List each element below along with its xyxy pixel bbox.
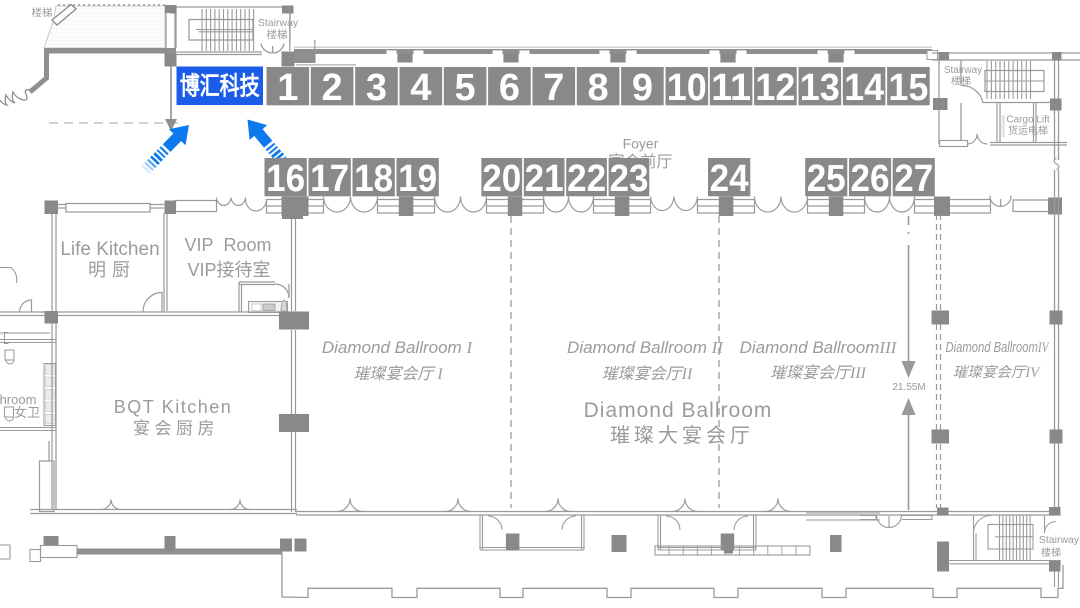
svg-text:Stairway: Stairway [1039,534,1080,546]
svg-text:5: 5 [455,67,476,109]
svg-text:8: 8 [588,67,609,109]
svg-text:璀璨宴会厅II: 璀璨宴会厅II [602,365,693,383]
svg-text:15: 15 [888,67,928,109]
svg-text:璀璨宴会厅 I: 璀璨宴会厅 I [353,365,443,383]
svg-text:6: 6 [499,67,520,109]
svg-text:博汇科技: 博汇科技 [180,73,260,101]
svg-text:18: 18 [354,158,393,200]
svg-text:货运电梯: 货运电梯 [1008,124,1048,137]
svg-text:Diamond BallroomIII: Diamond BallroomIII [740,338,898,357]
svg-text:9: 9 [632,67,653,109]
svg-text:明厨: 明厨 [88,260,136,280]
svg-text:12: 12 [755,67,795,109]
svg-text:14: 14 [844,67,884,109]
svg-text:7: 7 [543,67,564,109]
svg-text:VIP Room: VIP Room [184,235,271,255]
svg-text:24: 24 [710,158,749,200]
svg-text:17: 17 [310,158,349,200]
svg-text:Diamond Ballroom I: Diamond Ballroom I [322,338,474,357]
svg-text:宴会厨房: 宴会厨房 [133,419,219,438]
svg-text:2: 2 [322,67,343,109]
svg-text:Cargo Lift: Cargo Lift [1006,115,1050,126]
svg-text:Foyer: Foyer [623,136,659,152]
svg-text:21: 21 [525,158,564,200]
svg-text:璀璨宴会厅III: 璀璨宴会厅III [770,364,867,382]
svg-text:1: 1 [277,67,298,109]
svg-text:璀璨宴会厅IV: 璀璨宴会厅IV [953,364,1041,381]
svg-text:Life Kitchen: Life Kitchen [60,239,159,260]
svg-text:楼梯: 楼梯 [32,6,53,19]
svg-text:楼梯: 楼梯 [1041,546,1061,559]
svg-text:20: 20 [482,158,521,200]
svg-text:楼梯: 楼梯 [267,28,288,41]
svg-text:Diamond Ballroom: Diamond Ballroom [584,399,773,422]
svg-text:Diamond Ballroom II: Diamond Ballroom II [567,338,724,357]
svg-text:BQT Kitchen: BQT Kitchen [114,397,233,417]
svg-text:27: 27 [894,158,933,200]
svg-text:女卫: 女卫 [14,405,40,420]
svg-text:楼梯: 楼梯 [951,75,971,88]
svg-text:25: 25 [807,158,846,200]
svg-text:10: 10 [667,67,707,109]
svg-text:23: 23 [610,158,649,200]
svg-text:26: 26 [851,158,890,200]
svg-text:璀璨大宴会厅: 璀璨大宴会厅 [610,424,754,447]
svg-text:13: 13 [800,67,840,109]
svg-text:Stairway: Stairway [258,17,299,29]
svg-text:Stairway: Stairway [944,65,982,76]
svg-text:16: 16 [266,158,305,200]
svg-text:3: 3 [366,67,387,109]
svg-text:VIP接待室: VIP接待室 [187,260,270,280]
svg-text:19: 19 [398,158,437,200]
svg-text:21.55M: 21.55M [892,382,925,393]
svg-text:22: 22 [567,158,606,200]
svg-text:Diamond BallroomIV: Diamond BallroomIV [946,340,1051,356]
svg-text:4: 4 [410,67,431,109]
svg-text:11: 11 [711,67,751,109]
